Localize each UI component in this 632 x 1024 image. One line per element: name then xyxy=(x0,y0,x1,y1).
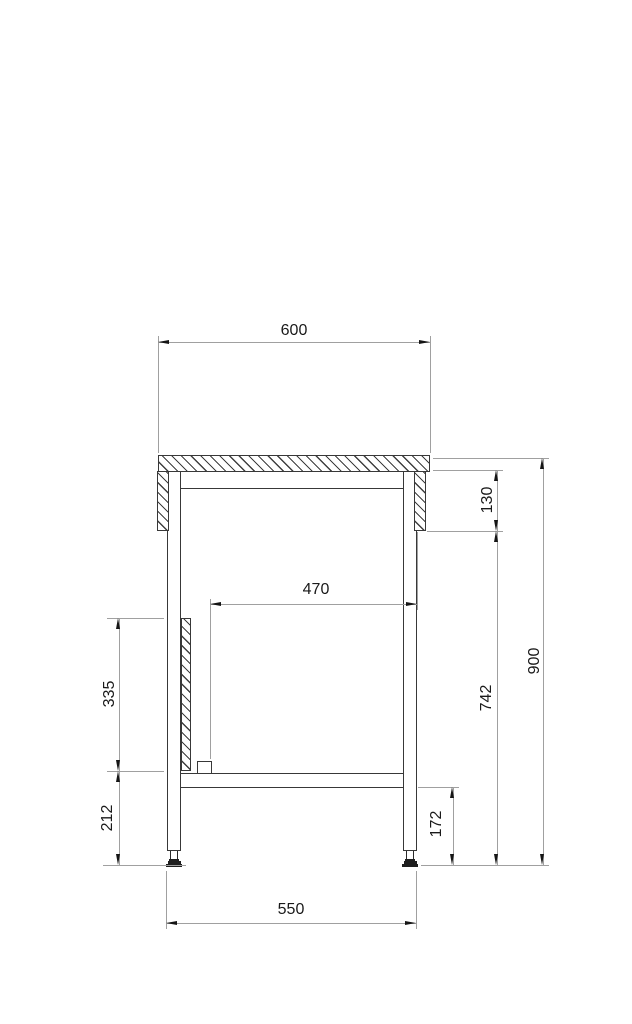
arrow-up-icon xyxy=(450,787,454,798)
extension-line xyxy=(416,871,417,929)
dim-line-leg-outer-span xyxy=(166,923,416,924)
dim-line-under-top-to-floor xyxy=(497,531,498,865)
arrow-up-icon xyxy=(494,531,498,542)
dim-label-overall-height: 900 xyxy=(527,648,543,675)
extension-line xyxy=(433,458,549,459)
left-leg xyxy=(167,471,181,851)
technical-drawing-canvas: 600 470 550 130 742 900 335 212 172 xyxy=(0,0,632,1024)
dim-line-inner-clear-width xyxy=(210,604,417,605)
right-leveling-foot xyxy=(402,851,418,867)
dim-label-top-width: 600 xyxy=(281,323,308,339)
extension-line xyxy=(103,865,186,866)
extension-line xyxy=(430,336,431,453)
arrow-right-icon xyxy=(405,921,416,925)
panel-foot-block xyxy=(197,761,212,774)
dim-line-side-panel-height xyxy=(119,618,120,771)
arrow-down-icon xyxy=(494,854,498,865)
arrow-up-icon xyxy=(494,470,498,481)
arrow-up-icon xyxy=(540,458,544,469)
arrow-left-icon xyxy=(158,340,169,344)
bottom-shelf xyxy=(180,773,404,788)
arrow-right-icon xyxy=(406,602,417,606)
extension-line xyxy=(158,336,159,453)
right-foot-plate xyxy=(402,864,418,867)
top-rail xyxy=(180,471,404,489)
arrow-left-icon xyxy=(210,602,221,606)
arrow-down-icon xyxy=(494,520,498,531)
dim-line-panel-bottom-to-floor xyxy=(119,771,120,865)
right-apron-section xyxy=(414,471,426,531)
arrow-left-icon xyxy=(166,921,177,925)
dim-line-overall-height xyxy=(543,458,544,865)
arrow-up-icon xyxy=(116,618,120,629)
extension-line xyxy=(210,599,211,759)
arrow-right-icon xyxy=(419,340,430,344)
arrow-down-icon xyxy=(540,854,544,865)
dim-label-apron-drop: 130 xyxy=(480,487,496,514)
tabletop-section xyxy=(158,455,430,472)
dim-line-top-width xyxy=(158,342,430,343)
extension-line xyxy=(427,531,503,532)
extension-line xyxy=(417,532,418,610)
extension-line xyxy=(421,865,549,866)
arrow-up-icon xyxy=(116,771,120,782)
dim-label-panel-bottom-to-floor: 212 xyxy=(100,805,116,832)
extension-line xyxy=(433,470,503,471)
dim-label-inner-clear-width: 470 xyxy=(303,582,330,598)
left-apron-section xyxy=(157,471,169,531)
dim-label-side-panel-height: 335 xyxy=(102,681,118,708)
dim-label-shelf-underside-to-floor: 172 xyxy=(429,811,445,838)
arrow-down-icon xyxy=(116,854,120,865)
arrow-down-icon xyxy=(116,760,120,771)
dim-label-under-top-to-floor: 742 xyxy=(479,685,495,712)
dim-label-leg-outer-span: 550 xyxy=(278,902,305,918)
arrow-down-icon xyxy=(450,854,454,865)
side-panel-section xyxy=(181,618,191,771)
